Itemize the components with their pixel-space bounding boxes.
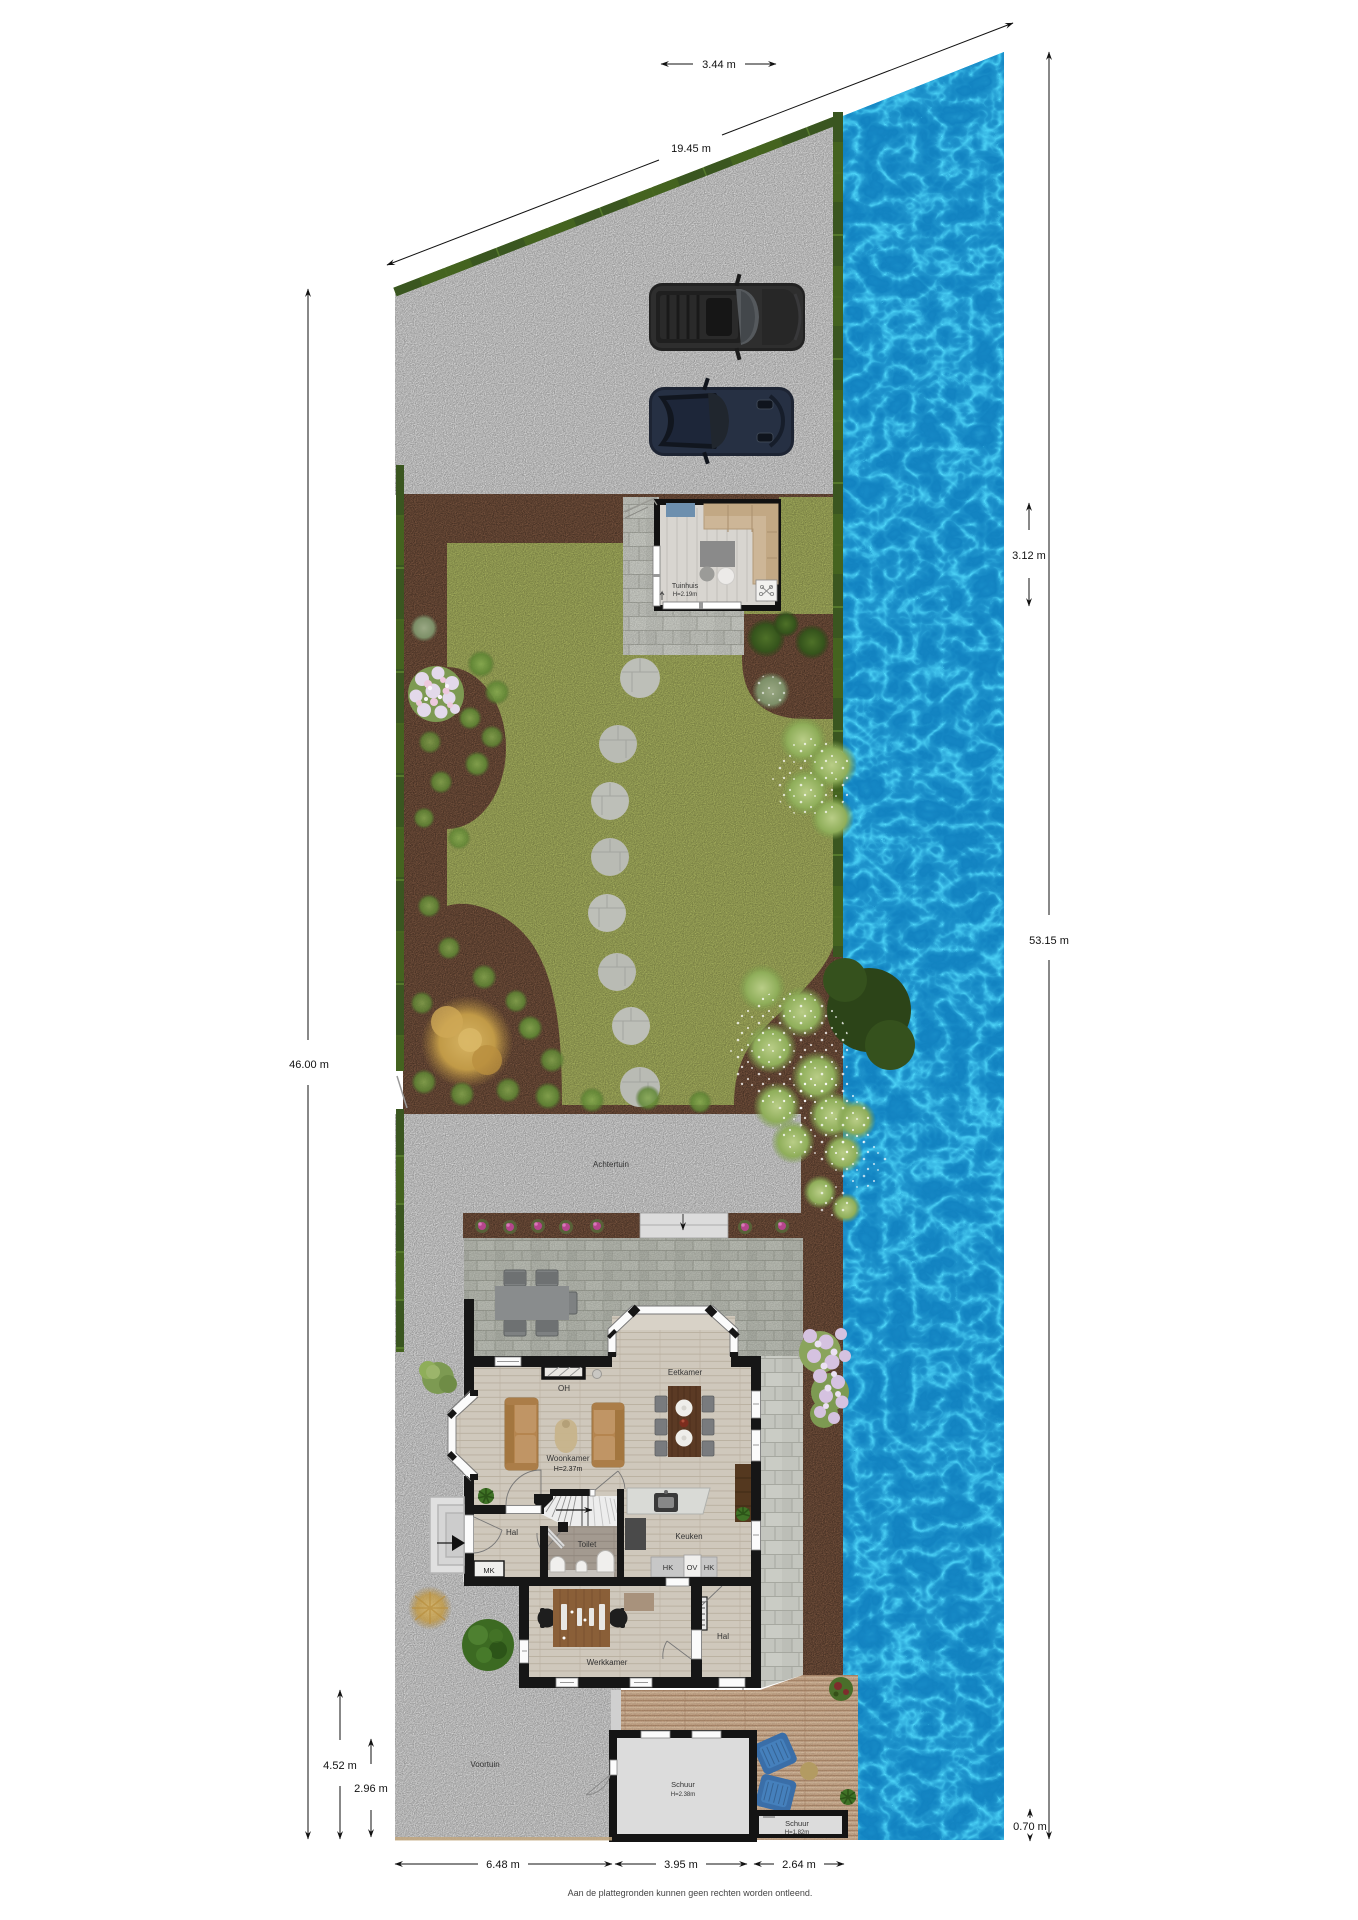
svg-text:19.45 m: 19.45 m: [671, 143, 711, 155]
svg-text:3.12 m: 3.12 m: [1012, 550, 1046, 562]
svg-text:6.48 m: 6.48 m: [486, 1859, 520, 1871]
svg-text:3.44 m: 3.44 m: [702, 59, 736, 71]
svg-text:Hal: Hal: [717, 1632, 729, 1641]
svg-text:OH: OH: [558, 1384, 570, 1393]
svg-text:Schuur: Schuur: [785, 1819, 809, 1828]
svg-text:H=2.19m: H=2.19m: [673, 592, 698, 598]
svg-text:2.64 m: 2.64 m: [782, 1859, 816, 1871]
svg-text:Werkkamer: Werkkamer: [587, 1658, 628, 1667]
svg-text:Tuinhuis: Tuinhuis: [672, 583, 699, 590]
svg-text:H=2.38m: H=2.38m: [671, 1792, 696, 1798]
svg-text:53.15 m: 53.15 m: [1029, 935, 1069, 947]
svg-text:HK: HK: [663, 1563, 673, 1572]
svg-text:Toilet: Toilet: [578, 1540, 597, 1549]
svg-text:Aan de plattegronden kunnen ge: Aan de plattegronden kunnen geen rechten…: [568, 1888, 813, 1898]
svg-text:2.96 m: 2.96 m: [354, 1783, 388, 1795]
svg-text:Schuur: Schuur: [671, 1780, 695, 1789]
svg-text:Woonkamer: Woonkamer: [547, 1454, 590, 1463]
svg-text:Hal: Hal: [506, 1528, 518, 1537]
svg-text:Eetkamer: Eetkamer: [668, 1368, 703, 1377]
svg-text:Keuken: Keuken: [675, 1532, 702, 1541]
svg-text:H=1.82m: H=1.82m: [785, 1830, 810, 1836]
svg-text:Voortuin: Voortuin: [470, 1760, 499, 1769]
svg-text:3.95 m: 3.95 m: [664, 1859, 698, 1871]
svg-text:Achtertuin: Achtertuin: [593, 1160, 629, 1169]
svg-text:46.00 m: 46.00 m: [289, 1059, 329, 1071]
svg-text:OV: OV: [687, 1563, 698, 1572]
svg-text:MK: MK: [483, 1566, 494, 1575]
svg-text:H=2.37m: H=2.37m: [554, 1466, 583, 1473]
svg-text:HK: HK: [704, 1563, 714, 1572]
svg-text:4.52 m: 4.52 m: [323, 1760, 357, 1772]
svg-text:0.70 m: 0.70 m: [1013, 1821, 1047, 1833]
